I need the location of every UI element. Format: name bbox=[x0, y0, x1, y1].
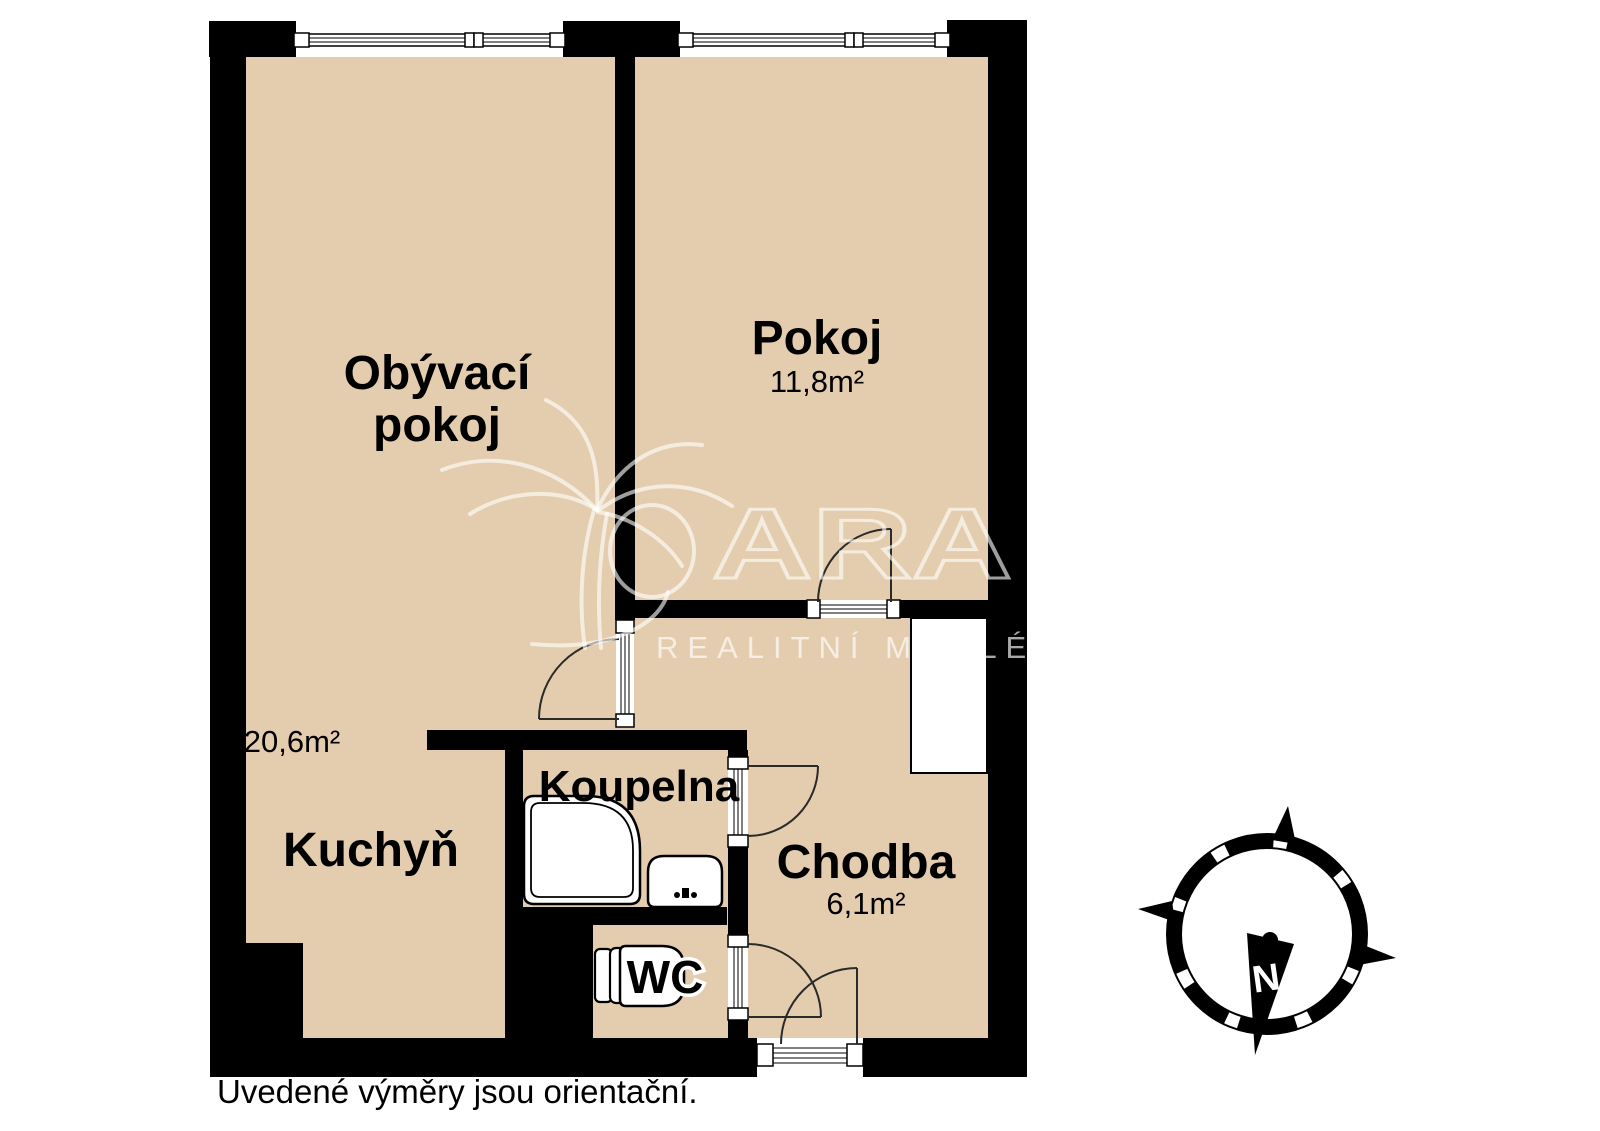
wall-wc-top bbox=[523, 907, 727, 925]
window-bedroom bbox=[678, 33, 950, 47]
wall-wc-left-block bbox=[505, 925, 593, 1038]
wall-living-bedroom bbox=[615, 57, 635, 620]
watermark-brand-text: ARA bbox=[712, 488, 1012, 600]
label-hallway: Chodba bbox=[777, 836, 956, 889]
label-kitchen: Kuchyň bbox=[283, 824, 459, 877]
compass-tick-left bbox=[1138, 901, 1175, 922]
wall-top-middle-pier bbox=[563, 21, 680, 57]
label-bedroom-area: 11,8m² bbox=[770, 364, 864, 399]
sill-wc-hallway bbox=[728, 935, 748, 1020]
floor-plan-drawing: Obývací pokoj 20,6m² Pokoj 11,8m² Kuchyň… bbox=[0, 0, 1600, 1131]
wall-top-left-block bbox=[209, 21, 296, 57]
wall-bedroom-bottom-left bbox=[615, 600, 807, 618]
label-bathroom: Koupelna bbox=[539, 762, 740, 811]
sill-entrance bbox=[757, 1038, 863, 1077]
window-living-room bbox=[294, 33, 565, 47]
wall-bathroom-top bbox=[427, 730, 747, 750]
wall-bedroom-bottom-right bbox=[900, 600, 988, 618]
compass-north-label: N bbox=[1250, 956, 1283, 1001]
wall-top-right-block bbox=[947, 20, 1027, 57]
label-living-room-area: 20,6m² bbox=[244, 724, 340, 759]
wall-bottom-left-segment bbox=[210, 1038, 757, 1077]
caption-disclaimer: Uvedené výměry jsou orientační. bbox=[217, 1073, 698, 1110]
sill-bedroom-hallway bbox=[807, 600, 900, 618]
sink-icon bbox=[648, 856, 722, 907]
label-living-room-line1: Obývací bbox=[344, 347, 532, 400]
label-living-room-line2: pokoj bbox=[373, 399, 501, 452]
compass-rose: N bbox=[1138, 806, 1396, 1055]
bathtub-icon bbox=[524, 796, 640, 904]
floor-plan-page: Obývací pokoj 20,6m² Pokoj 11,8m² Kuchyň… bbox=[0, 0, 1600, 1131]
label-bedroom: Pokoj bbox=[752, 312, 883, 365]
wall-left bbox=[210, 57, 246, 1077]
compass-tick-right bbox=[1359, 944, 1396, 965]
compass-tick-top bbox=[1272, 806, 1296, 844]
watermark-tagline: REALITNÍ MAKLÉŘI bbox=[656, 630, 1084, 665]
compass-needle-pivot bbox=[1262, 932, 1278, 948]
label-hallway-area: 6,1m² bbox=[826, 886, 905, 921]
label-wc: WC bbox=[627, 951, 704, 1003]
